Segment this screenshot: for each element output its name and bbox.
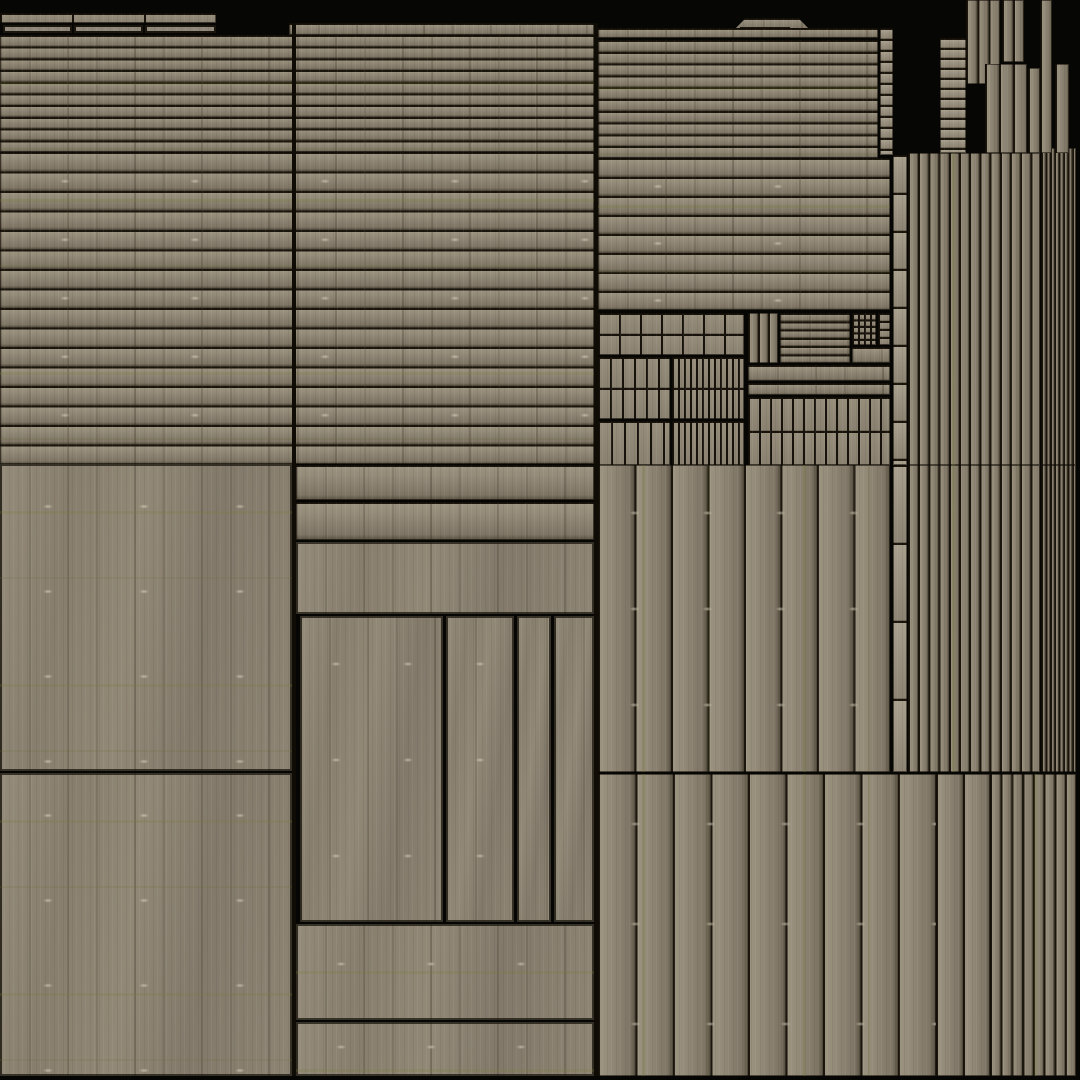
door-panel-wide (300, 616, 443, 922)
right-pole-mid (893, 155, 907, 465)
narrow-vertical-planks-1 (908, 153, 1040, 465)
shutter-horizontal-slats (780, 313, 850, 363)
bottom-narrow-vertical-strips (990, 774, 1076, 1076)
cluster-plank-grid (748, 397, 890, 465)
strip-top-left-segmented (0, 13, 216, 23)
topright-plank-strip-d (1040, 0, 1052, 153)
column-seam-mid-right (594, 23, 598, 1076)
column-seam-left-mid (292, 23, 296, 1076)
shutter-tiny-grid (852, 313, 876, 345)
shutter-side-squares (878, 313, 890, 345)
cluster-small-blocks-left (598, 357, 670, 419)
right-cap-row (598, 28, 878, 38)
strip-box-3 (145, 25, 216, 33)
mid-band-row-2 (296, 502, 594, 540)
cluster-band-wide (748, 365, 890, 381)
mid-bottom-panel-upper (296, 924, 594, 1020)
narrow-vertical-planks-2 (908, 465, 1040, 772)
topright-plank-strip-e (1055, 64, 1069, 153)
strip-box-1 (3, 25, 72, 33)
cluster-dense-strips-left (672, 357, 744, 419)
mid-top-cap-row (289, 23, 594, 35)
cluster-vertical-strips (598, 421, 670, 465)
cluster-band-thin (748, 383, 890, 395)
door-panel-right (554, 616, 594, 922)
cluster-dense-strips-2 (672, 421, 744, 465)
shutter-vertical-planks (748, 313, 778, 363)
left-large-panel-lower (0, 773, 292, 1076)
ultra-narrow-strips-2 (1041, 465, 1076, 772)
cluster-medium-blocks (598, 313, 744, 355)
door-panel-narrow (517, 616, 551, 922)
mid-lintel-plank (296, 542, 594, 614)
bottom-medium-vertical-planks (936, 774, 990, 1076)
mid-band-row-1 (296, 465, 594, 500)
topright-mini-plank-stack (940, 38, 966, 153)
left-large-panel-upper (0, 464, 292, 771)
topright-plank-strip-c (985, 64, 1027, 153)
strip-box-2 (74, 25, 143, 33)
texture-atlas-canvas (0, 0, 1080, 1080)
right-wide-vertical-planks (598, 465, 890, 772)
right-pole-lower (893, 465, 907, 772)
bottom-wide-vertical-planks (598, 774, 936, 1076)
left-mid-plank-rows (0, 152, 594, 464)
left-mid-thin-plank-rows (0, 35, 594, 152)
door-panel-middle (446, 616, 514, 922)
topright-plank-strip-b (1002, 0, 1024, 62)
mid-bottom-panel-lower (296, 1022, 594, 1076)
right-upper-pole (880, 28, 893, 155)
topright-plank-strip-f (1028, 68, 1040, 153)
ultra-narrow-strips-1 (1041, 148, 1076, 465)
right-plank-rows (598, 158, 890, 310)
shutter-small-band (852, 347, 890, 363)
right-thin-plank-rows (598, 40, 878, 158)
